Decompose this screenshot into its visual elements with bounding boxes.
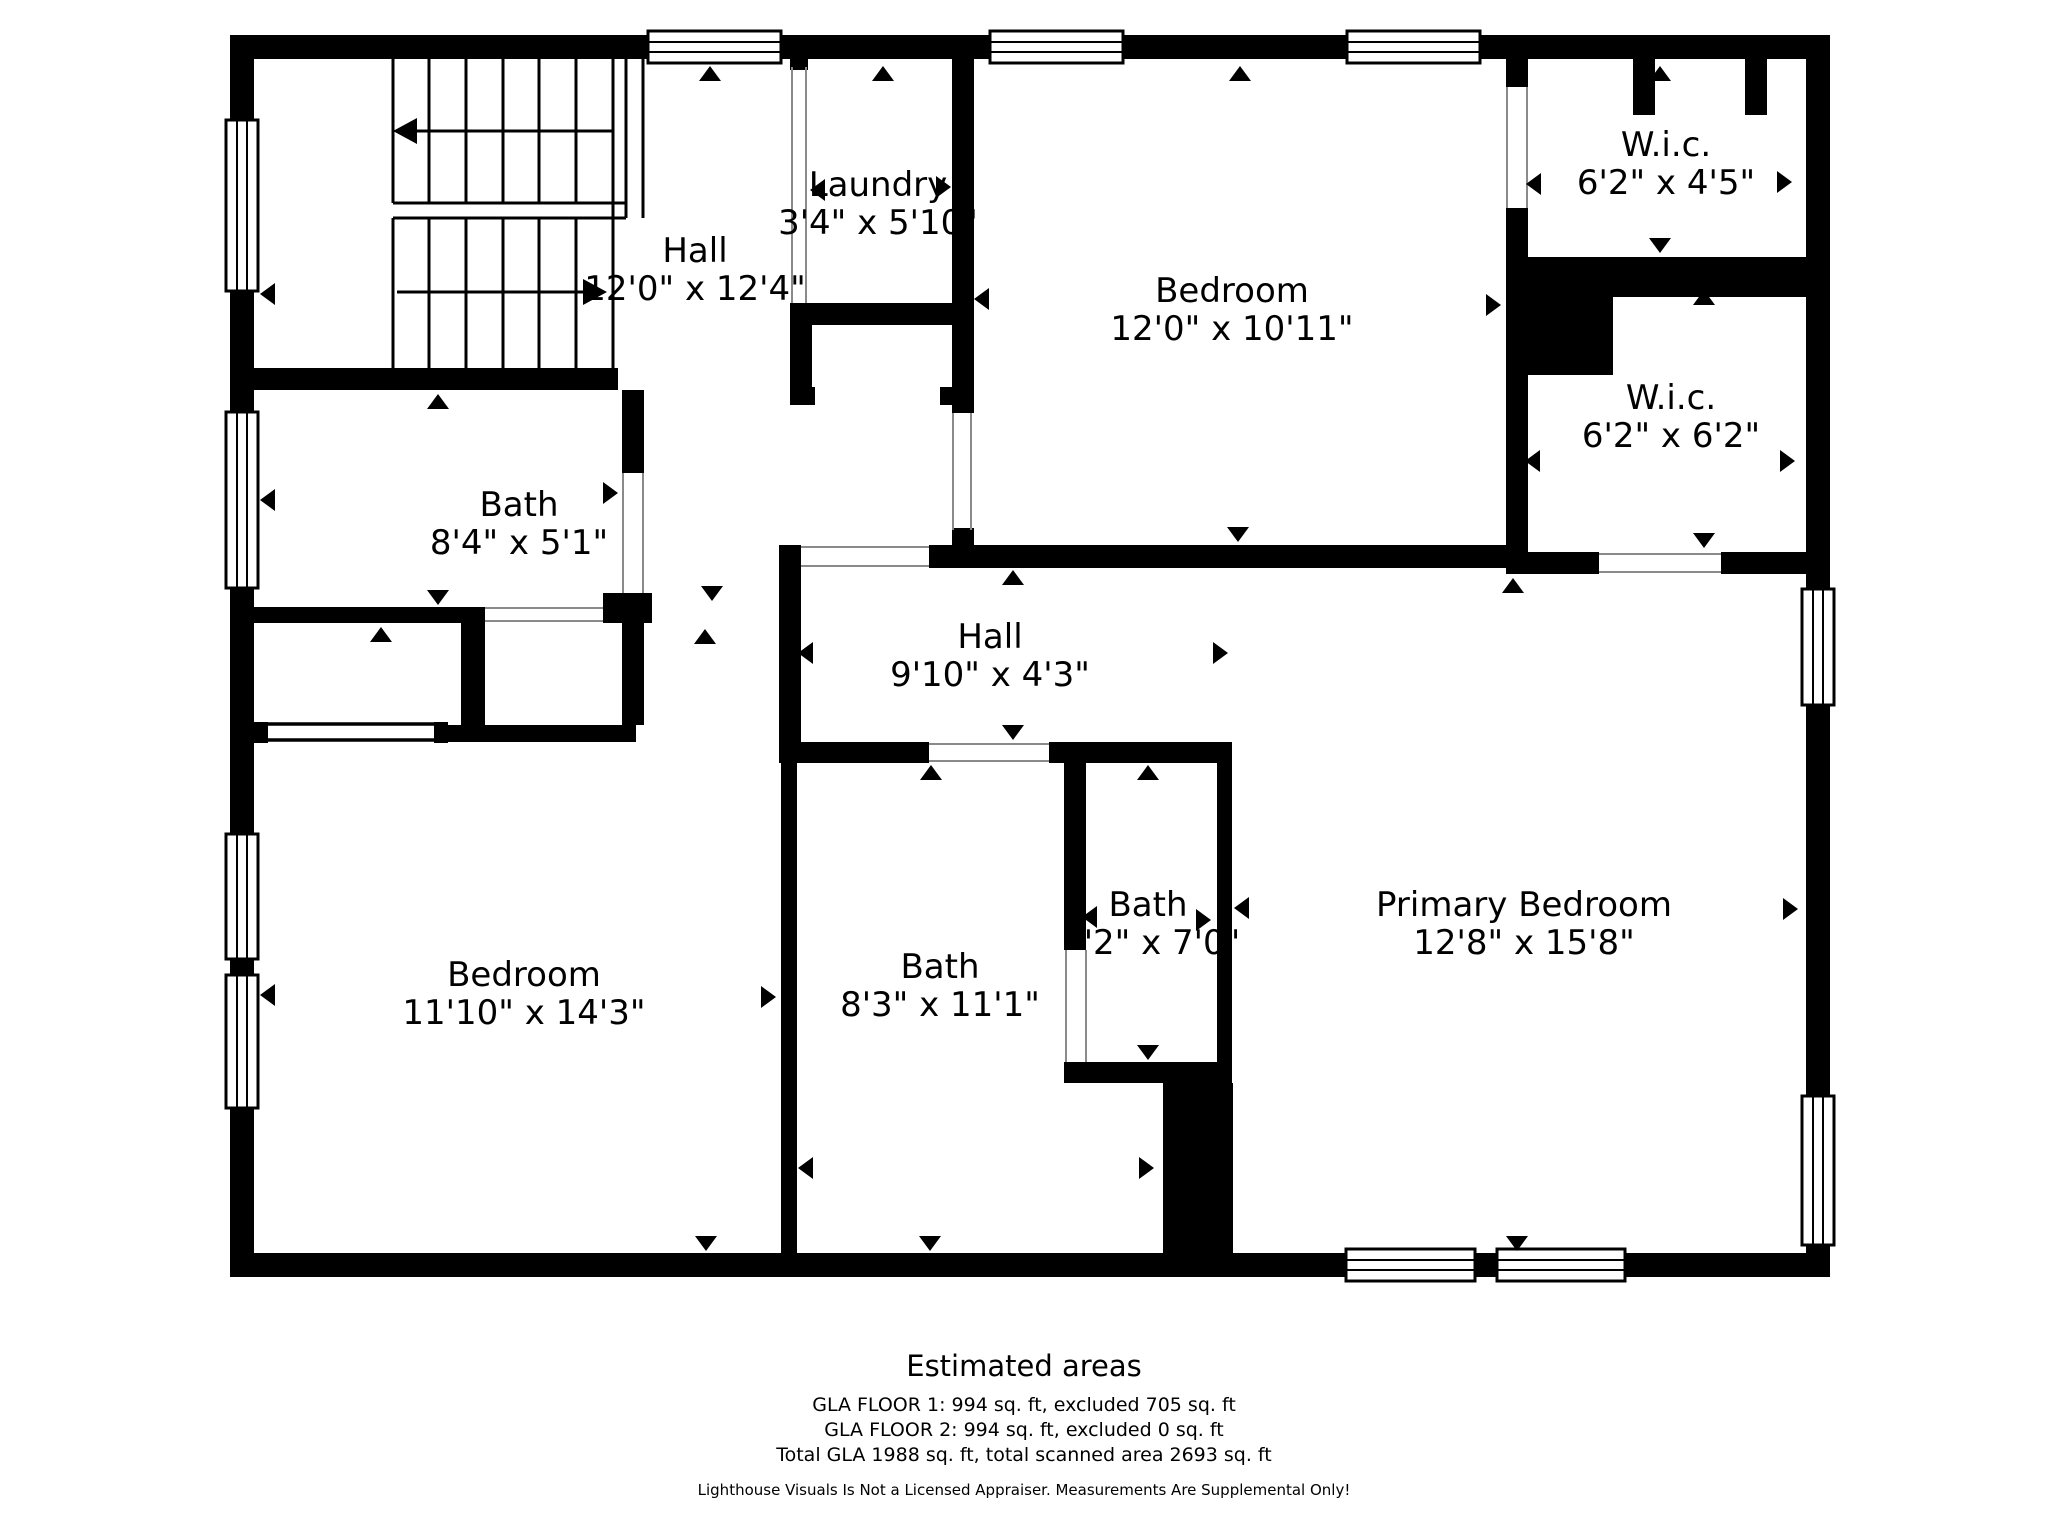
measurement-arrow-icon: [1783, 898, 1798, 920]
wall-segment: [1721, 552, 1806, 574]
window: [226, 120, 258, 291]
room-name-label: Bath: [900, 947, 979, 987]
measurement-arrow-icon: [974, 288, 989, 310]
window: [648, 31, 781, 63]
measurement-arrow-icon: [1137, 765, 1159, 780]
room-name-label: Bedroom: [1155, 271, 1309, 311]
measurement-arrow-icon: [1229, 66, 1251, 81]
estimated-areas-title: Estimated areas: [0, 1349, 2048, 1383]
wall-segment: [230, 35, 254, 120]
measurement-arrow-icon: [1002, 570, 1024, 585]
wall-segment: [1049, 742, 1232, 763]
measurement-arrow-icon: [1526, 173, 1541, 195]
wall-segment: [781, 35, 990, 59]
wall-segment: [1064, 1062, 1217, 1083]
wall-segment: [1806, 705, 1830, 1096]
room-name-label: Bath: [479, 485, 558, 525]
measurement-arrow-icon: [260, 984, 275, 1006]
window: [226, 975, 258, 1108]
measurement-arrow-icon: [1502, 578, 1524, 593]
staircase: [393, 59, 643, 368]
room-name-label: W.i.c.: [1626, 378, 1716, 418]
measurement-arrow-icon: [260, 489, 275, 511]
wall-segment: [1613, 275, 1806, 297]
floor-plan-page: Hall12'0" x 12'4"Laundry3'4" x 5'10"Bedr…: [0, 0, 2048, 1536]
room-name-label: Hall: [957, 617, 1022, 657]
measurement-arrow-icon: [1213, 642, 1228, 664]
measurement-arrow-icon: [1234, 897, 1249, 919]
wall-segment: [1633, 59, 1655, 115]
wall-segment: [622, 623, 644, 725]
room-dims-label: 12'0" x 12'4": [584, 269, 806, 309]
window: [226, 834, 258, 959]
measurement-arrow-icon: [370, 627, 392, 642]
room-name-label: Hall: [662, 231, 727, 271]
wall-segment: [230, 35, 648, 59]
measurement-arrow-icon: [695, 1236, 717, 1251]
measurement-arrow-icon: [427, 394, 449, 409]
wall-segment: [230, 959, 254, 975]
wall-segment: [1506, 279, 1613, 375]
wall-segment: [254, 607, 485, 623]
floor-plan: Hall12'0" x 12'4"Laundry3'4" x 5'10"Bedr…: [0, 0, 2048, 1536]
wall-segment: [230, 291, 254, 412]
wall-segment: [603, 593, 652, 623]
gla-floor-1-line: GLA FLOOR 1: 994 sq. ft, excluded 705 sq…: [0, 1394, 2048, 1416]
wall-segment: [781, 763, 797, 1253]
wall-segment: [1625, 1253, 1830, 1277]
measurement-arrow-icon: [1137, 1045, 1159, 1060]
wall-segment: [1475, 1253, 1497, 1277]
window: [226, 412, 258, 588]
wall-segment: [461, 623, 485, 742]
room-dims-label: 12'0" x 10'11": [1110, 309, 1353, 349]
wall-segment: [1745, 59, 1767, 115]
measurement-arrow-icon: [919, 1236, 941, 1251]
room-name-label: Laundry: [809, 165, 948, 205]
window: [990, 31, 1123, 63]
wall-segment: [1163, 1083, 1233, 1253]
window: [1346, 1249, 1475, 1281]
wall-segment: [1064, 763, 1086, 950]
room-name-label: Primary Bedroom: [1376, 885, 1672, 925]
measurement-arrow-icon: [699, 66, 721, 81]
measurement-arrow-icon: [1139, 1157, 1154, 1179]
measurement-arrow-icon: [427, 590, 449, 605]
gla-total-line: Total GLA 1988 sq. ft, total scanned are…: [0, 1444, 2048, 1466]
wall-segment: [230, 1253, 1346, 1277]
measurement-arrow-icon: [872, 66, 894, 81]
wall-segment: [779, 742, 929, 763]
measurement-arrow-icon: [260, 283, 275, 305]
window: [1497, 1249, 1625, 1281]
room-name-label: W.i.c.: [1621, 125, 1711, 165]
measurement-arrow-icon: [603, 482, 618, 504]
room-dims-label: '2" x 7'0": [1084, 923, 1241, 963]
room-dims-label: 8'4" x 5'1": [430, 523, 608, 563]
wall-segment: [940, 387, 972, 405]
room-name-label: Bedroom: [447, 955, 601, 995]
wall-segment: [622, 390, 644, 473]
room-dims-label: 9'10" x 4'3": [890, 655, 1090, 695]
wall-segment: [790, 387, 815, 405]
wall-segment: [929, 545, 1506, 568]
room-dims-label: 6'2" x 6'2": [1582, 416, 1760, 456]
gla-floor-2-line: GLA FLOOR 2: 994 sq. ft, excluded 0 sq. …: [0, 1419, 2048, 1441]
wall-segment: [230, 1108, 254, 1277]
measurement-arrow-icon: [1777, 171, 1792, 193]
measurement-arrow-icon: [798, 1157, 813, 1179]
wall-segment: [448, 725, 636, 742]
measurement-arrow-icon: [1002, 725, 1024, 740]
wall-segment: [1123, 35, 1347, 59]
window: [1802, 1096, 1834, 1245]
measurement-arrow-icon: [1649, 238, 1671, 253]
measurement-arrow-icon: [694, 629, 716, 644]
disclaimer: Lighthouse Visuals Is Not a Licensed App…: [0, 1481, 2048, 1499]
wall-segment: [1480, 35, 1830, 59]
measurement-arrow-icon: [1780, 450, 1795, 472]
window: [1347, 31, 1480, 63]
measurement-arrow-icon: [761, 986, 776, 1008]
measurement-arrow-icon: [701, 586, 723, 601]
room-dims-label: 8'3" x 11'1": [840, 985, 1040, 1025]
wall-segment: [1506, 552, 1599, 574]
room-dims-label: 6'2" x 4'5": [1577, 163, 1755, 203]
window: [1802, 589, 1834, 705]
measurement-arrow-icon: [1693, 533, 1715, 548]
measurement-arrow-icon: [1227, 527, 1249, 542]
room-dims-label: 12'8" x 15'8": [1413, 923, 1635, 963]
wall-segment: [1806, 35, 1830, 589]
measurement-arrow-icon: [920, 765, 942, 780]
room-dims-label: 11'10" x 14'3": [402, 993, 645, 1033]
wall-segment: [1506, 59, 1528, 87]
room-name-label: Bath: [1108, 885, 1187, 925]
wall-segment: [230, 588, 254, 834]
measurement-arrow-icon: [1486, 294, 1501, 316]
wall-segment: [254, 368, 618, 390]
wall-segment: [779, 545, 801, 763]
room-dims-label: 3'4" x 5'10": [778, 203, 978, 243]
